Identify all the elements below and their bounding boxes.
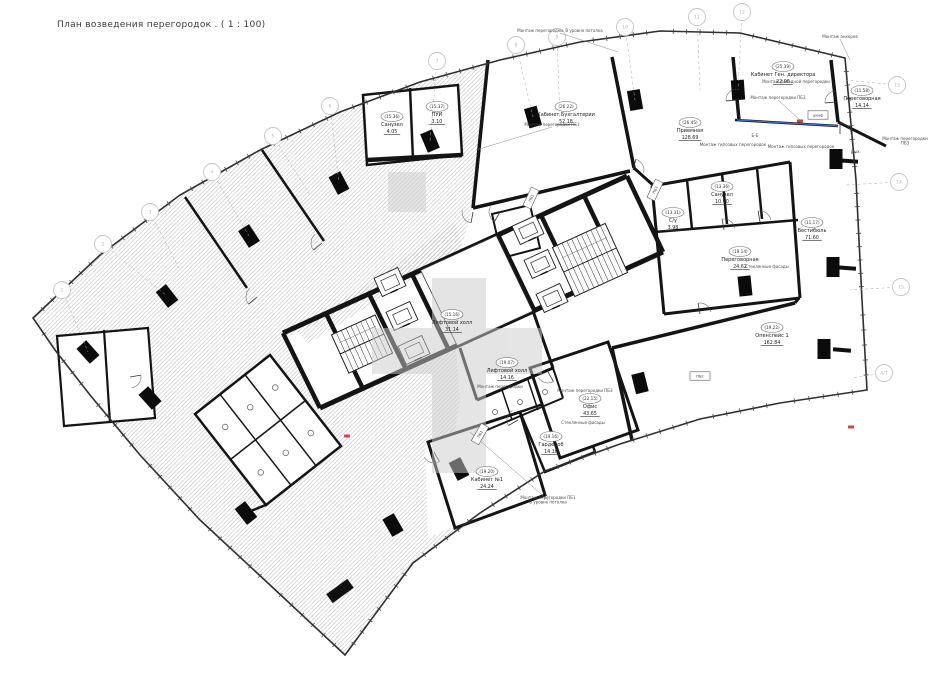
annotation: Б-Б: [752, 133, 759, 138]
svg-text:(19.07): (19.07): [499, 360, 515, 365]
svg-text:128.69: 128.69: [682, 135, 699, 141]
svg-text:Монтаж перегородки ПБ1: Монтаж перегородки ПБ1: [524, 122, 580, 127]
svg-text:(15.37): (15.37): [429, 104, 445, 109]
svg-text:31.14: 31.14: [445, 327, 459, 333]
svg-text:43.65: 43.65: [583, 411, 597, 417]
svg-text:Приемная: Приемная: [677, 128, 703, 134]
svg-text:Монтаж анкеров: Монтаж анкеров: [822, 34, 858, 39]
svg-text:2: 2: [102, 242, 105, 248]
svg-text:Монтаж перегородки ПБ1В уровне: Монтаж перегородки ПБ1В уровне потолка: [520, 495, 576, 505]
svg-text:Монтаж фасадной перегородки: Монтаж фасадной перегородки: [762, 79, 830, 84]
column: [737, 275, 752, 296]
svg-text:Лифтовой холл: Лифтовой холл: [487, 367, 528, 374]
svg-text:Монтаж перегородки ПБ3: Монтаж перегородки ПБ3: [750, 95, 806, 100]
svg-text:Монтаж перегородки ПБ3: Монтаж перегородки ПБ3: [557, 388, 613, 393]
svg-text:4.05: 4.05: [387, 129, 398, 135]
svg-text:Стеклянные фасады: Стеклянные фасады: [745, 264, 789, 269]
annotation: Стеклянные фасады: [745, 264, 789, 269]
svg-text:12: 12: [739, 10, 745, 16]
svg-text:7: 7: [436, 59, 439, 65]
column: [827, 257, 840, 277]
annotation: Монтаж гипсовых перегородок: [700, 142, 767, 147]
svg-text:10.90: 10.90: [715, 199, 729, 205]
svg-text:6: 6: [329, 104, 332, 110]
svg-text:Санузел: Санузел: [381, 122, 403, 128]
svg-text:8: 8: [515, 43, 518, 49]
svg-text:3: 3: [149, 210, 152, 216]
svg-text:4: 4: [211, 170, 214, 176]
svg-text:(19.22): (19.22): [764, 325, 780, 330]
svg-text:14.14: 14.14: [855, 103, 869, 109]
annotation: Монтаж перегородкиПБ3: [882, 136, 928, 146]
wall-tag: ПБ2: [690, 372, 710, 380]
svg-text:(11.58): (11.58): [854, 88, 870, 93]
svg-text:(15.16): (15.16): [444, 312, 460, 317]
svg-text:Монтаж гипсовых перегородок: Монтаж гипсовых перегородок: [768, 144, 835, 149]
svg-text:Монтаж перегородкиПБ3: Монтаж перегородкиПБ3: [882, 136, 928, 146]
svg-text:(13.36): (13.36): [714, 184, 730, 189]
svg-text:Переговорная: Переговорная: [721, 257, 758, 263]
annotation: Монтаж гипсовых перегородок: [768, 144, 835, 149]
annotation: Монтаж фасадной перегородки: [762, 79, 830, 84]
svg-text:10: 10: [622, 25, 628, 31]
svg-text:13: 13: [894, 83, 900, 89]
svg-text:14: 14: [896, 180, 902, 186]
svg-text:11: 11: [694, 15, 700, 21]
svg-text:Гардероб: Гардероб: [538, 442, 563, 448]
svg-text:С/у: С/у: [669, 218, 677, 224]
svg-text:(19.16): (19.16): [543, 434, 559, 439]
svg-text:(11.17): (11.17): [804, 220, 820, 225]
svg-text:(15.36): (15.36): [384, 114, 400, 119]
wall-tag: шкаф: [808, 111, 828, 119]
red-revision-mark: [344, 435, 350, 438]
annotation: Монтаж перегородки ПБ3: [557, 388, 613, 393]
svg-text:(26.45): (26.45): [682, 120, 698, 125]
annotation: Монтаж перегородки: [477, 384, 523, 389]
svg-text:5: 5: [272, 134, 275, 140]
column: [818, 339, 831, 359]
svg-text:(25.39): (25.39): [775, 64, 791, 69]
svg-text:(22.15): (22.15): [582, 396, 598, 401]
svg-text:Б-Б: Б-Б: [752, 133, 759, 138]
svg-text:71.60: 71.60: [805, 235, 819, 241]
svg-text:1: 1: [61, 288, 64, 294]
svg-text:(19.14): (19.14): [732, 249, 748, 254]
svg-text:9: 9: [556, 35, 559, 41]
svg-text:(13.31): (13.31): [665, 210, 681, 215]
svg-text:Стеклянные фасады: Стеклянные фасады: [561, 420, 605, 425]
drawing-sheet: План возведения перегородок . ( 1 : 100)…: [0, 0, 950, 687]
svg-text:Офис: Офис: [583, 404, 597, 410]
svg-text:ПБ2: ПБ2: [696, 374, 703, 378]
annotation: Вых.: [851, 149, 861, 154]
svg-text:(19.20): (19.20): [479, 469, 495, 474]
column: [830, 149, 843, 169]
svg-text:Монтаж гипсовых перегородок: Монтаж гипсовых перегородок: [700, 142, 767, 147]
svg-text:А/Т: А/Т: [880, 371, 888, 377]
svg-text:162.84: 162.84: [764, 340, 781, 346]
svg-text:Лифтовой холл: Лифтовой холл: [432, 319, 473, 326]
floor-plan-canvas: 123456789101112131415А/Т(26.22)Кабинет Б…: [0, 0, 950, 687]
svg-text:Монтаж перегородки. В уровне п: Монтаж перегородки. В уровне потолка: [517, 28, 603, 33]
annotation: Стеклянные фасады: [561, 420, 605, 425]
svg-text:Вых.: Вых.: [851, 149, 861, 154]
svg-text:шкаф: шкаф: [813, 113, 824, 117]
svg-text:Монтаж перегородки: Монтаж перегородки: [477, 384, 523, 389]
svg-text:Переговорная: Переговорная: [843, 96, 880, 102]
svg-text:14.16: 14.16: [500, 375, 514, 381]
svg-text:Вестибюль: Вестибюль: [798, 228, 827, 234]
svg-text:Санузел: Санузел: [711, 192, 733, 198]
svg-text:14.18: 14.18: [544, 449, 558, 455]
svg-text:24.24: 24.24: [480, 484, 494, 490]
svg-text:3.10: 3.10: [432, 119, 443, 125]
svg-text:Опенспейс 1: Опенспейс 1: [755, 332, 788, 339]
svg-text:3.98: 3.98: [668, 225, 679, 231]
red-revision-mark: [848, 426, 854, 429]
svg-text:(26.22): (26.22): [558, 104, 574, 109]
svg-text:ПУИ: ПУИ: [432, 112, 443, 118]
svg-text:Кабинет №1: Кабинет №1: [471, 477, 503, 483]
svg-text:15: 15: [898, 285, 904, 291]
svg-text:Кабинет Ген. директора: Кабинет Ген. директора: [751, 72, 816, 78]
svg-text:Кабинет Бухгалтерии: Кабинет Бухгалтерии: [537, 112, 595, 118]
